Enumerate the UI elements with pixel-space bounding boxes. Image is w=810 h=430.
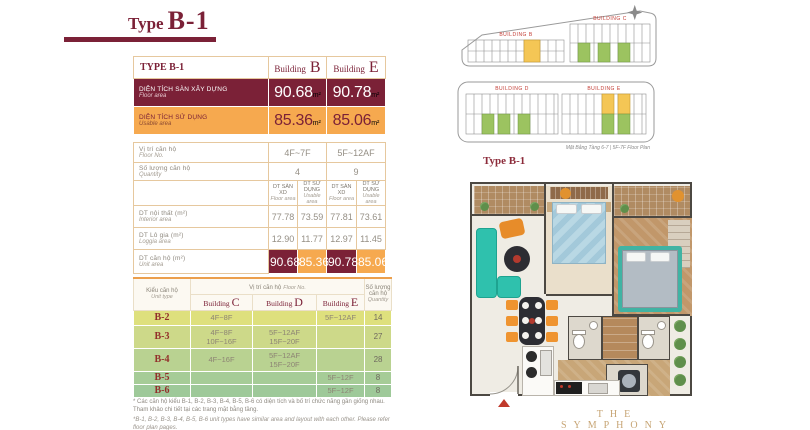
unit-area-row: DT căn hộ (m²)Unit area 90.68 85.36 90.7… — [134, 250, 386, 274]
wall — [472, 214, 544, 216]
unit-area-value: 90.68 — [269, 250, 298, 274]
sofa — [476, 228, 497, 298]
floor-no-row: Vị trí căn hộFloor No. 4F~7F 5F~12AF — [134, 143, 386, 163]
table-row: B-6 5F~12F 8 — [134, 384, 392, 397]
stove-burner — [526, 367, 537, 378]
highlighted-unit-yellow — [618, 94, 630, 114]
unit-type-cell: B-2 — [134, 310, 191, 325]
wall — [546, 294, 612, 296]
quantity-cell: 8 — [365, 384, 392, 397]
cooktop-knob — [560, 385, 563, 388]
stove-burner — [526, 351, 537, 362]
plant — [674, 320, 686, 332]
highlighted-unit-green — [602, 114, 614, 134]
wall — [612, 184, 614, 316]
floor-area-value-b: 90.68m² — [269, 79, 327, 107]
floor-area-label: DIỆN TÍCH SÀN XÂY DỰNG Floor area — [134, 79, 269, 107]
subheader-row: DT SÀN XDFloor area DT SỬ DỤNGUsable are… — [134, 181, 386, 206]
footnote-vi: * Các căn hộ kiểu B-1, B-2, B-3, B-4, B-… — [133, 399, 395, 414]
highlighted-unit-green — [518, 114, 530, 134]
interior-value: 77.78 — [269, 206, 298, 228]
floor-area-row: DIỆN TÍCH SÀN XÂY DỰNG Floor area 90.68m… — [134, 79, 386, 107]
quantity-cell: 28 — [365, 348, 392, 371]
usable-area-label: DIỆN TÍCH SỬ DỤNG Usable area — [134, 107, 269, 135]
quantity-cell: 27 — [365, 325, 392, 348]
footnotes: * Các căn hộ kiểu B-1, B-2, B-3, B-4, B-… — [133, 399, 395, 430]
dining-chair — [506, 332, 518, 342]
washbasin — [657, 321, 666, 330]
building-e-header: Building E — [317, 294, 365, 310]
plate — [522, 302, 529, 309]
building-b-label: BUILDING B — [499, 32, 533, 38]
building-c-label: BUILDING C — [593, 16, 627, 22]
building-d-label: BUILDING D — [495, 86, 529, 92]
unit-type-cell: B-6 — [134, 384, 191, 397]
subheader-cell: DT SÀN XDFloor area — [269, 181, 298, 206]
quantity-header: Số lượng căn hộQuantity — [365, 278, 392, 310]
quantity-row: Số lượng căn hộQuantity 4 9 — [134, 163, 386, 181]
plate — [535, 332, 542, 339]
plant — [674, 338, 686, 350]
interior-value: 77.81 — [327, 206, 357, 228]
nightstand — [547, 202, 552, 212]
toilet — [573, 334, 585, 349]
subheader-cell: DT SÀN XDFloor area — [327, 181, 357, 206]
range-cell — [191, 384, 253, 397]
washbasin — [589, 321, 598, 330]
range-cell: 5F~12F — [317, 384, 365, 397]
highlighted-unit-green — [482, 114, 494, 134]
subheader-cell: DT SỬ DỤNGUsable area — [298, 181, 327, 206]
usable-area-value-b: 85.36m² — [269, 107, 327, 135]
floor-no-label: Vị trí căn hộFloor No. — [134, 143, 269, 163]
quantity-cell: 14 — [365, 310, 392, 325]
highlighted-unit-green — [618, 43, 630, 62]
unit-type-header: Kiểu căn hộUnit type — [134, 278, 191, 310]
unit-area-value: 85.06 — [357, 250, 386, 274]
range-cell — [253, 371, 317, 384]
dining-chair — [546, 316, 558, 326]
walk-in-closet — [602, 316, 638, 360]
toilet-tank — [572, 330, 586, 335]
floorplan-caption: Mặt Bằng Tầng 6-7 | 5F-7F Floor Plan — [566, 144, 651, 151]
center-dish — [529, 318, 535, 324]
range-cell: 4F~16F — [191, 348, 253, 371]
plate — [522, 317, 529, 324]
interior-area-row: DT nội thất (m²)Interior area 77.78 73.5… — [134, 206, 386, 228]
entrance-arrow — [498, 399, 510, 407]
range-cell: 5F~12AF 15F~20F — [253, 348, 317, 371]
armchair — [498, 218, 525, 240]
floor-area-value-e: 90.78m² — [327, 79, 386, 107]
highlighted-unit-green — [578, 43, 590, 62]
plant — [674, 374, 686, 386]
range-cell — [253, 384, 317, 397]
unit-type-cell: B-3 — [134, 325, 191, 348]
usable-area-row: DIỆN TÍCH SỬ DỤNG Usable area 85.36m² 85… — [134, 107, 386, 135]
range-cell — [317, 348, 365, 371]
subheader-empty — [134, 181, 269, 206]
table-row: B-5 5F~12F 8 — [134, 371, 392, 384]
unit-type-cell: B-4 — [134, 348, 191, 371]
decor-red — [513, 255, 521, 263]
loggia-value: 12.97 — [327, 228, 357, 250]
range-cell — [317, 325, 365, 348]
dining-chair — [546, 300, 558, 310]
quantity-value-b: 4 — [269, 163, 327, 181]
decor-orange — [672, 190, 684, 202]
loggia-area-label: DT Lô gia (m²)Loggia area — [134, 228, 269, 250]
unit-area-label: DT căn hộ (m²)Unit area — [134, 250, 269, 274]
range-cell: 5F~12AF 15F~20F — [253, 325, 317, 348]
interior-value: 73.61 — [357, 206, 386, 228]
building-d-header: Building D — [253, 294, 317, 310]
table-row: B-2 4F~8F 5F~12AF 14 — [134, 310, 392, 325]
range-cell: 5F~12AF — [317, 310, 365, 325]
building-e-label: BUILDING E — [587, 86, 621, 92]
usable-area-value-e: 85.06m² — [327, 107, 386, 135]
wardrobe — [550, 187, 608, 199]
sofa-chaise — [497, 276, 521, 298]
building-c-header: Building C — [191, 294, 253, 310]
quantity-value-e: 9 — [327, 163, 386, 181]
table-row: Kiểu căn hộUnit type Vị trí căn hộ Floor… — [134, 278, 392, 294]
highlighted-unit-yellow — [602, 94, 614, 114]
toilet-tank — [641, 330, 655, 335]
table-row: B-4 4F~16F 5F~12AF 15F~20F 28 — [134, 348, 392, 371]
cooktop — [556, 382, 582, 394]
wall — [544, 184, 546, 294]
interior-value: 73.59 — [298, 206, 327, 228]
table-row: B-3 4F~8F 10F~16F 5F~12AF 15F~20F 27 — [134, 325, 392, 348]
pillow — [650, 252, 670, 262]
floor-no-header: Vị trí căn hộ Floor No. — [191, 278, 365, 294]
pillow — [581, 204, 602, 214]
loggia-value: 12.90 — [269, 228, 298, 250]
cooktop-knob — [568, 385, 571, 388]
quantity-cell: 8 — [365, 371, 392, 384]
plate — [535, 317, 542, 324]
apartment-floor-plan — [470, 182, 692, 396]
range-cell: 5F~12F — [317, 371, 365, 384]
interior-area-label: DT nội thất (m²)Interior area — [134, 206, 269, 228]
quantity-label: Số lượng căn hộQuantity — [134, 163, 269, 181]
highlighted-unit-yellow — [524, 40, 540, 62]
loggia-value: 11.77 — [298, 228, 327, 250]
siteplan-buildings-d-e: BUILDING D BUILDING E Mặt Bằng Tầng 6-7 … — [452, 78, 662, 152]
building-e-header: Building E — [327, 57, 386, 79]
pillow — [626, 252, 646, 262]
range-cell: 4F~8F 10F~16F — [191, 325, 253, 348]
building-b-header: Building B — [269, 57, 327, 79]
kitchen-sink — [540, 350, 552, 376]
brand-logotype: THE SYMPHONY — [538, 409, 696, 430]
title-underline — [64, 37, 216, 42]
floor-no-value-b: 4F~7F — [269, 143, 327, 163]
decor-orange — [560, 188, 571, 199]
brochure-page: Type B-1 TYPE B-1 Building B Building E … — [0, 0, 810, 430]
highlighted-unit-green — [618, 114, 630, 134]
unit-type-table: Kiểu căn hộUnit type Vị trí căn hộ Floor… — [133, 277, 392, 398]
wall — [614, 216, 690, 218]
plate — [535, 302, 542, 309]
wall — [614, 314, 690, 316]
unit-area-value: 90.78 — [327, 250, 357, 274]
loggia-area-row: DT Lô gia (m²)Loggia area 12.90 11.77 12… — [134, 228, 386, 250]
spec-table-corner: TYPE B-1 — [134, 57, 269, 79]
unit-area-value: 85.36 — [298, 250, 327, 274]
footnote-en: *B-1, B-2, B-3, B-4, B-5, B-6 unit types… — [133, 417, 395, 430]
highlighted-unit-green — [598, 43, 610, 62]
floorplan-type-label: Type B-1 — [483, 155, 525, 167]
siteplan-buildings-b-c: BUILDING B BUILDING C — [452, 4, 667, 76]
range-cell — [191, 371, 253, 384]
washing-machine-door — [622, 374, 636, 388]
range-cell: 4F~8F — [191, 310, 253, 325]
nightstand — [606, 202, 611, 212]
spacer-row — [134, 135, 386, 143]
spec-table: TYPE B-1 Building B Building E DIỆN TÍCH… — [133, 56, 386, 274]
toilet — [642, 334, 654, 349]
loggia-value: 11.45 — [357, 228, 386, 250]
floor-no-value-e: 5F~12AF — [327, 143, 386, 163]
pillow — [556, 204, 577, 214]
plant — [674, 356, 686, 368]
title-prefix: Type — [128, 14, 164, 33]
dining-chair — [546, 332, 558, 342]
plant — [620, 204, 629, 213]
page-title: Type B-1 — [128, 6, 210, 36]
title-code: B-1 — [168, 6, 210, 35]
range-cell — [253, 310, 317, 325]
plant — [480, 202, 489, 211]
sink-2 — [588, 383, 608, 394]
table-row: TYPE B-1 Building B Building E — [134, 57, 386, 79]
plate — [522, 332, 529, 339]
entrance-door — [488, 364, 522, 398]
dining-chair — [506, 316, 518, 326]
subheader-cell: DT SỬ DỤNGUsable area — [357, 181, 386, 206]
plant — [530, 202, 539, 211]
dining-chair — [506, 300, 518, 310]
highlighted-unit-green — [498, 114, 510, 134]
unit-type-cell: B-5 — [134, 371, 191, 384]
